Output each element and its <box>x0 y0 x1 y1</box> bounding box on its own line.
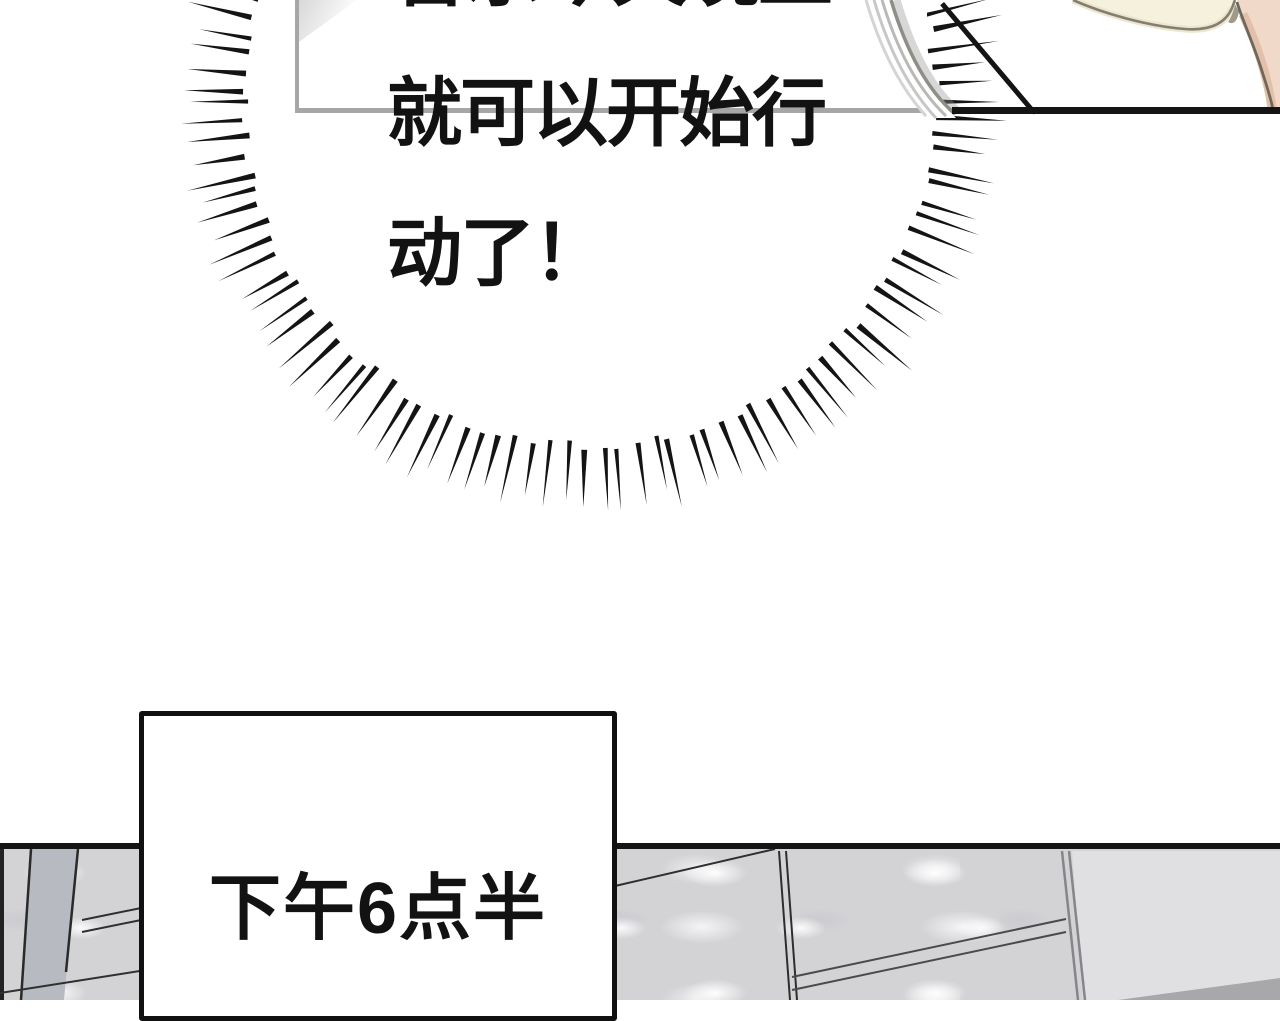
caption-box: 下午6点半 <box>139 711 617 1021</box>
page-edge-curves <box>853 0 968 120</box>
speech-text: 音乐今天晚上 就可以开始行 动了！ <box>295 0 831 323</box>
speech-line-3: 动了！ <box>387 183 831 323</box>
manga-page: { "speech_bubble": { "line_partial": "音乐… <box>0 0 1280 1000</box>
speech-line-partial: 音乐今天晚上 <box>393 0 831 43</box>
caption-text: 下午6点半 <box>144 854 612 964</box>
character-shoulder <box>1040 0 1280 120</box>
panel-divider-line <box>952 107 1280 114</box>
wall-flat-panel <box>1072 851 1280 1000</box>
speech-line-2: 就可以开始行 <box>387 43 831 183</box>
